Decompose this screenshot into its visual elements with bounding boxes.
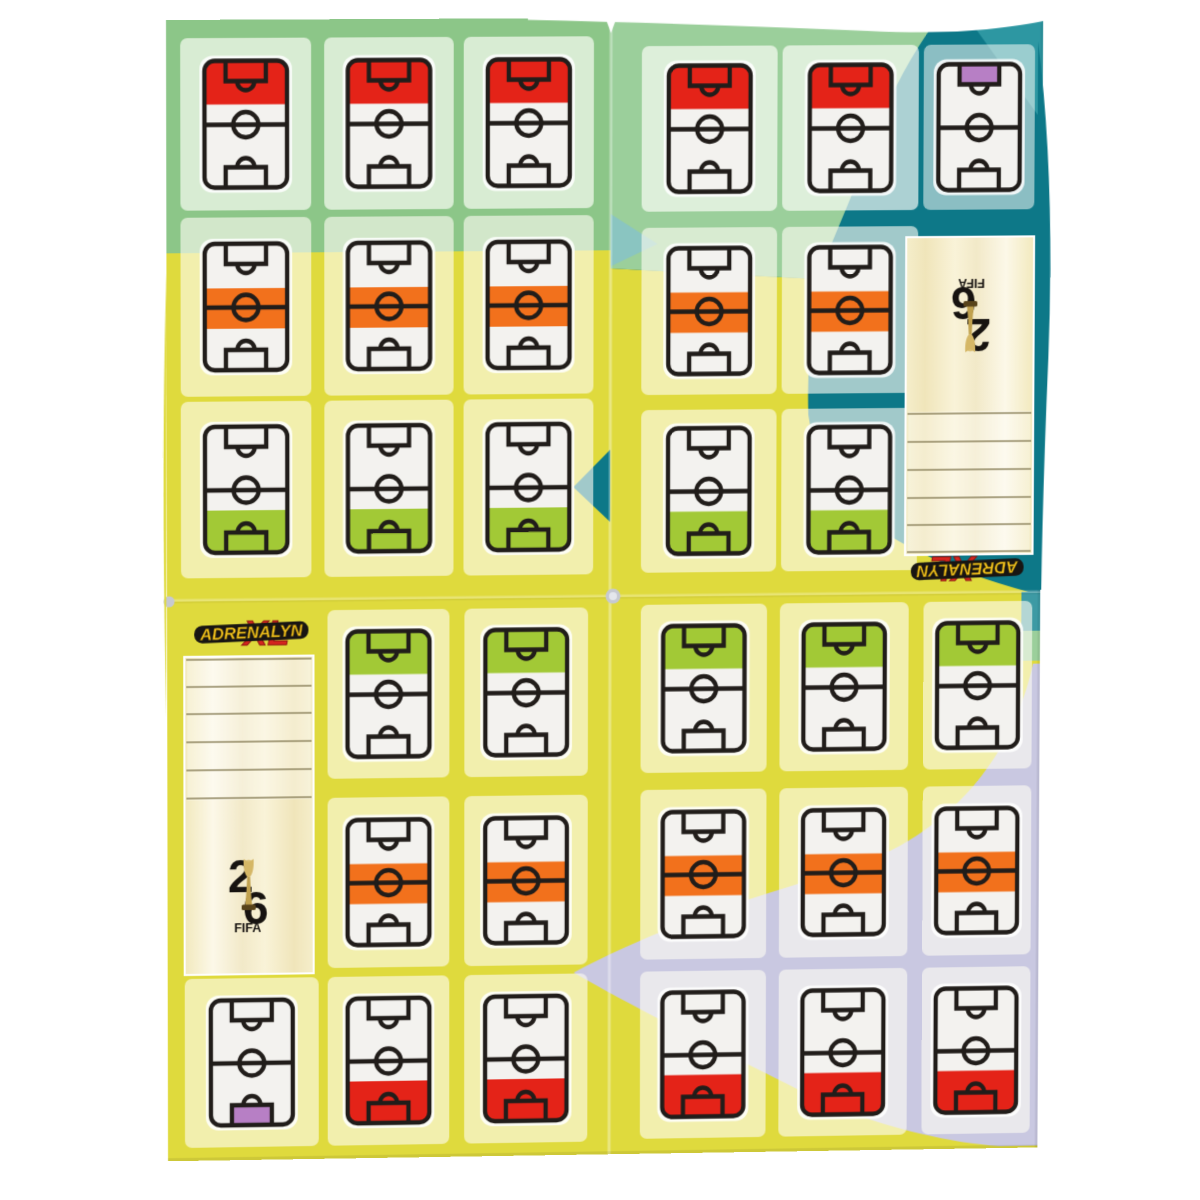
svg-text:FIFA: FIFA [958, 276, 985, 290]
svg-text:FIFA: FIFA [234, 921, 261, 935]
